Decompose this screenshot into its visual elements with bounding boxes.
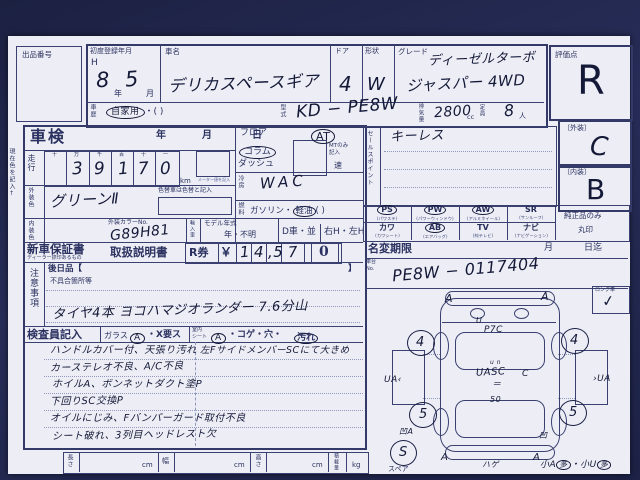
model-year-label: モデル年式 — [204, 220, 237, 227]
registration-label: 初度登録年月 — [90, 48, 132, 55]
mileage-unit: km — [180, 178, 191, 185]
auction-number-box: 出品番号 — [16, 46, 82, 122]
fuel-label: 燃料 — [237, 202, 243, 222]
manual-label: 取扱説明書 — [110, 247, 168, 259]
model-code-label: 型式 — [279, 104, 285, 122]
score-label: 評価点 — [555, 51, 578, 59]
auction-number-label: 出品番号 — [22, 51, 52, 59]
wheel-mark-rr: 5 — [559, 400, 587, 426]
damage-mark-right-side: ›UA — [593, 375, 611, 384]
note-line: ハンドルカバー付、天張り汚れ — [50, 346, 197, 356]
mileage-note: メーター値を記入 — [198, 179, 230, 183]
ext-color-value: グリーンⅡ — [50, 191, 120, 210]
dealer-car: D車・並 — [282, 228, 316, 237]
mileage-digit: 0 — [160, 161, 172, 179]
length-label: 長さ — [66, 454, 72, 470]
defect-label: 不具合箇所等 — [50, 278, 92, 285]
sales-point-value: キーレス — [390, 129, 444, 144]
seat-dirty-selected: 汚れ — [294, 333, 318, 344]
mileage-digit: 9 — [94, 161, 106, 179]
equip-sr: SR(サンルーフ) — [507, 205, 555, 222]
history-label: 車歴 — [89, 104, 95, 122]
damage-mark-front-right: A — [541, 291, 549, 302]
interior-rating-value: B — [586, 176, 606, 204]
color-change-box — [158, 197, 232, 215]
damage-mark-bumper-left: A — [441, 453, 448, 463]
damage-mark-rear-left: 凹A — [399, 428, 413, 436]
interior-rating-box: 〔内装〕 B — [558, 164, 632, 212]
auction-sheet-photo: { "top": { "auction_no": "出品番号", "reg_la… — [0, 0, 640, 480]
damage-mark-roof-small: u n — [490, 360, 501, 366]
price-digit: ,5 — [268, 245, 283, 260]
mileage-digit: 7 — [137, 161, 149, 179]
equip-aw: AW(アルミホイール) — [459, 205, 507, 222]
score-box: 評価点 R — [549, 45, 633, 121]
note-right: 左FサイドメンバーSCにて大きめ — [200, 346, 350, 356]
exterior-rating-box: 〔外装〕 C — [558, 120, 632, 168]
notice-label: 注意事項 — [28, 268, 37, 322]
handle-side: 右H・左H — [324, 228, 365, 237]
mileage-empty-box — [196, 151, 230, 177]
price-digit: 1 — [239, 245, 250, 261]
r-ticket-label: R券 — [189, 247, 208, 258]
displacement-label: 排気量 — [417, 103, 423, 123]
measurements-row — [63, 452, 369, 474]
damage-mark-rear-right: 凹 — [539, 432, 548, 440]
chassis-number: PE8W − 0117404 — [392, 256, 540, 285]
model-year-value: 年・不明 — [224, 231, 256, 239]
price-digit: 7 — [287, 245, 298, 261]
equip-tv: TV(純テレビ) — [459, 223, 507, 240]
width-label: 幅 — [162, 458, 169, 465]
rear-roof-panel — [455, 400, 545, 438]
spare-tire-mark: S — [390, 440, 417, 466]
registration-year: 8 — [95, 70, 110, 92]
damage-mark-left-side: UA‹ — [384, 376, 402, 385]
equip-kawa: カワ(カワシート) — [363, 223, 411, 240]
warranty-sub: ディーラー捺印あるもの — [27, 256, 82, 261]
shift-floor: フロア — [240, 129, 267, 138]
damage-mark-hood2: P7C — [484, 326, 503, 335]
front-bumper — [445, 291, 555, 306]
wheel-mark-fr: 4 — [561, 328, 589, 354]
note-line: 下回りSC交換P — [50, 396, 124, 407]
shaken-label: 車検 — [30, 129, 66, 145]
mileage-label: 走行 — [27, 154, 35, 180]
note-line: ホイルA、ボンネットダクト塗P — [52, 380, 202, 390]
fuel-selected: 軽油 — [293, 206, 316, 217]
ac-value: WAC — [260, 173, 308, 191]
wheel-mark-fl: 4 — [407, 330, 435, 356]
damage-mark-front-left: A — [445, 293, 453, 304]
door-label: ドア — [335, 48, 349, 55]
mt-box — [293, 140, 327, 176]
inspector-label: 検査員記入 — [27, 329, 82, 340]
mileage-digit: 1 — [117, 161, 130, 179]
seat-grade: A — [211, 333, 226, 344]
glass-label: ガラス — [104, 332, 128, 340]
exterior-rating-value: C — [589, 133, 609, 160]
registration-era: H — [91, 59, 98, 68]
door-value: 4 — [339, 74, 352, 94]
capacity-value: 8 — [503, 102, 515, 119]
long-vehicle-check: ✓ — [601, 293, 616, 310]
warranty-label: 新車保証書 — [27, 244, 85, 256]
shape-label: 形状 — [365, 48, 379, 55]
wheel-arch-fl — [433, 332, 449, 360]
color-change-note: 色替車は色替と記入 — [158, 188, 212, 194]
sales-point-label: セールスポイント — [366, 130, 372, 202]
equip-ps: PS(パワステ) — [363, 205, 411, 222]
shape-value: W — [367, 76, 385, 94]
shift-dash: ダッシュ — [238, 160, 274, 169]
price-digit: 4 — [254, 245, 264, 260]
damage-mark-hood: U — [476, 317, 482, 325]
ac-label: 冷房 — [237, 175, 243, 197]
glass-grade: A — [130, 333, 145, 344]
margin-note: 現在色を記入↑ — [8, 148, 14, 198]
name-change-label: 名変期限 — [368, 243, 412, 254]
damage-mark-bumper-center: ハゲ — [482, 461, 499, 469]
genuine-note: 純正品のみ — [564, 212, 602, 220]
at-mark: AT — [311, 129, 335, 144]
score-value: R — [577, 61, 605, 101]
mileage-digit: 3 — [71, 161, 83, 179]
equip-ab: AB(エアバッグ) — [411, 223, 459, 240]
spare-tire-label: スペア — [388, 466, 409, 473]
import-car-label: 輸入車 — [189, 220, 194, 240]
note-line: オイルにじみ、Fバンパーガード取付不良 — [50, 414, 246, 424]
price-fixed-zero: 0 — [319, 245, 329, 259]
equip-pw: PW(パワーウィンドウ) — [411, 205, 459, 222]
capacity-label: 定員 — [478, 104, 484, 122]
shift-column-selected: コラム — [239, 146, 276, 159]
height-label: 高さ — [254, 454, 260, 470]
exterior-rating-label: 〔外装〕 — [563, 125, 591, 132]
load-label: 積載量 — [333, 453, 338, 471]
registration-month: 5 — [124, 68, 140, 90]
grade-line1: ディーゼルターボ — [428, 51, 535, 68]
auction-sheet: 現在色を記入↑ 出品番号 初度登録年月 H 8 年 5 月 車名 デリカスペース… — [8, 36, 630, 474]
grade-label: グレード — [398, 48, 428, 56]
ext-color-label: 外装色 — [27, 187, 33, 215]
car-name-label: 車名 — [165, 48, 180, 56]
wheel-mark-rl: 5 — [409, 402, 437, 428]
damage-mark-roof: UASC — [476, 367, 506, 379]
int-color-label: 内装色 — [27, 220, 33, 240]
later-item-label: 後日品【 — [48, 265, 82, 274]
hood-vent-right — [514, 308, 529, 319]
history-value: 自家用 — [106, 106, 145, 119]
small-damage-summary: 小A多・小U多 — [540, 460, 611, 470]
equip-navi: ナビ(ナビゲーション) — [507, 223, 555, 240]
